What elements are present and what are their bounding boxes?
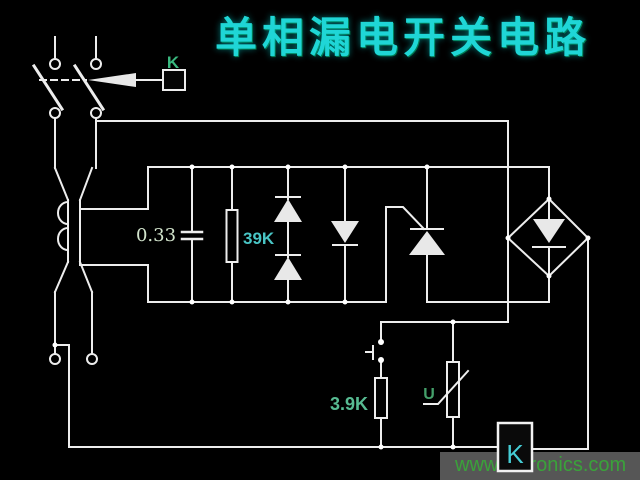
diode-triangle-down bbox=[331, 221, 359, 243]
resistor-body bbox=[375, 378, 387, 418]
switch-blade bbox=[75, 66, 103, 109]
resistor-3p9k-symbol bbox=[375, 378, 387, 447]
primary-diverge bbox=[55, 262, 92, 292]
switch-contact bbox=[91, 108, 101, 118]
main-switch-symbol bbox=[34, 37, 103, 168]
capacitor-symbol bbox=[182, 167, 202, 302]
bridge-diode-bar bbox=[533, 247, 565, 276]
clamp-diode-pair-symbol bbox=[274, 167, 302, 302]
diode-triangle-up bbox=[274, 257, 302, 280]
switch-contact bbox=[50, 59, 60, 69]
relay-coil-label: K bbox=[506, 439, 524, 469]
bridge-diode-triangle bbox=[533, 219, 565, 243]
varistor-label: U bbox=[423, 386, 435, 403]
varistor-symbol bbox=[424, 322, 468, 447]
scr-anode-wire bbox=[427, 255, 549, 302]
switch-contact bbox=[50, 108, 60, 118]
diode-cathode-bar bbox=[333, 245, 357, 302]
resistor-3p9k-label: 3.9K bbox=[330, 394, 368, 414]
resistor-39k-label: 39K bbox=[243, 229, 275, 248]
test-button-symbol bbox=[366, 346, 381, 378]
relay-branch-wire bbox=[532, 238, 588, 449]
top-rail bbox=[80, 167, 549, 209]
circuit-canvas: www.cntronics.com bbox=[0, 0, 640, 480]
scr-thyristor-symbol bbox=[409, 167, 549, 302]
bridge-rectifier-symbol bbox=[508, 199, 588, 276]
scr-triangle bbox=[409, 231, 445, 255]
load-terminal bbox=[50, 354, 60, 364]
diode-cathode-bar bbox=[276, 167, 300, 199]
clamp-diode-symbol bbox=[331, 167, 359, 302]
diode-cathode-bar bbox=[276, 222, 300, 257]
button-actuator bbox=[366, 346, 373, 359]
schematic-page: 单相漏电开关电路 www.cntronics.com bbox=[0, 0, 640, 480]
switch-contact bbox=[91, 59, 101, 69]
capacitor-plates bbox=[182, 232, 202, 239]
page-title: 单相漏电开关电路 bbox=[183, 4, 623, 65]
capacitor-label: 0.33 bbox=[136, 225, 176, 246]
resistor-body bbox=[227, 210, 238, 262]
diode-triangle-up bbox=[274, 199, 302, 222]
switch-blade bbox=[34, 66, 62, 109]
bottom-rail-and-gate bbox=[80, 207, 424, 302]
secondary-winding-arcs bbox=[58, 202, 68, 250]
junction-dots bbox=[53, 165, 591, 450]
relay-coil-box: K bbox=[498, 423, 532, 471]
relay-link-label: K bbox=[167, 53, 180, 72]
wire bbox=[55, 118, 96, 168]
varistor-body bbox=[447, 362, 459, 417]
supply-leads bbox=[55, 37, 96, 59]
watermark: www.cntronics.com bbox=[440, 452, 640, 480]
relay-trip-indicator bbox=[88, 70, 185, 90]
relay-k-box bbox=[163, 70, 185, 90]
primary-through-core bbox=[68, 200, 80, 265]
arrow-left-icon bbox=[88, 73, 136, 87]
watermark-text: www.cntronics.com bbox=[454, 454, 626, 476]
load-terminal bbox=[87, 354, 97, 364]
primary-converge bbox=[55, 168, 92, 200]
resistor-39k-symbol bbox=[227, 167, 238, 302]
